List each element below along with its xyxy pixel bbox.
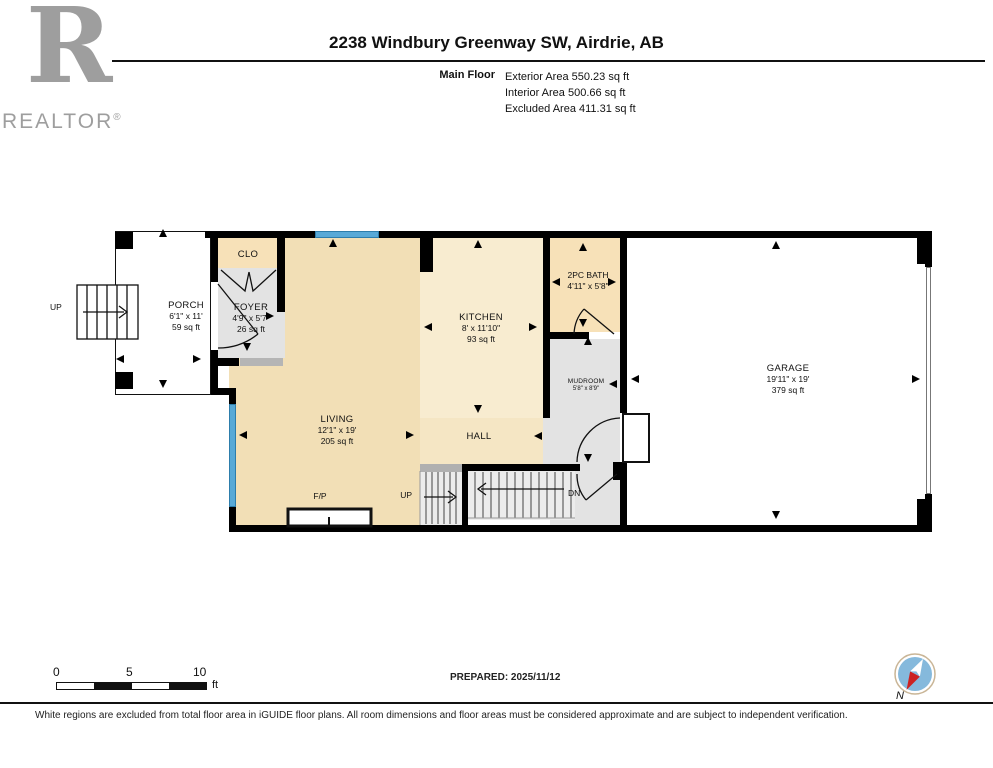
room-living-ext <box>229 358 285 525</box>
compass-north-label: N <box>896 690 904 702</box>
dimension-arrow-up <box>329 239 337 247</box>
clo-name: CLO <box>220 249 276 260</box>
stairs-down-area <box>468 471 575 520</box>
prepared-date: PREPARED: 2025/11/12 <box>450 672 560 683</box>
wall <box>917 499 932 525</box>
scale-tick-5: 5 <box>126 665 133 679</box>
dimension-arrow-right <box>608 278 616 286</box>
room-hall-passage <box>543 418 550 464</box>
label-hall: HALL <box>447 431 511 442</box>
garage-overhead-door <box>926 267 931 494</box>
foyer-area: 26 sq ft <box>212 324 290 335</box>
scale-bar-segment <box>94 683 132 689</box>
area-summary: Exterior Area 550.23 sq ft Interior Area… <box>505 69 636 117</box>
kitchen-dims: 8' x 11'10" <box>429 323 533 334</box>
wall <box>420 238 433 272</box>
floor-plan-page: R REALTOR® 2238 Windbury Greenway SW, Ai… <box>0 0 993 768</box>
garage-area: 379 sq ft <box>736 385 840 396</box>
dimension-arrow-right <box>529 323 537 331</box>
dimension-arrow-right <box>266 312 274 320</box>
dimension-arrow-up <box>474 240 482 248</box>
title-divider <box>112 60 985 62</box>
dimension-arrow-down <box>772 511 780 519</box>
dimension-arrow-down <box>584 454 592 462</box>
room-living <box>285 238 420 525</box>
foyer-name: FOYER <box>212 302 290 313</box>
dimension-arrow-left <box>631 375 639 383</box>
wall <box>917 238 932 264</box>
foyer-dims: 4'9" x 5'7" <box>212 313 290 324</box>
scale-tick-0: 0 <box>53 665 60 679</box>
label-porch-stairs-up: UP <box>50 302 62 312</box>
dimension-arrow-left <box>424 323 432 331</box>
living-area: 205 sq ft <box>285 436 389 447</box>
dimension-arrow-up <box>772 241 780 249</box>
wall <box>211 231 218 282</box>
window-living-top <box>315 231 379 238</box>
realtor-brand-text: REALTOR <box>2 110 113 133</box>
label-kitchen: KITCHEN 8' x 11'10" 93 sq ft <box>429 312 533 344</box>
label-stairs-down: DN <box>568 488 580 498</box>
garage-dims: 19'11" x 19' <box>736 374 840 385</box>
footer-divider <box>0 702 993 704</box>
kitchen-area: 93 sq ft <box>429 334 533 345</box>
registered-mark: ® <box>113 112 122 123</box>
dimension-arrow-left <box>116 355 124 363</box>
fireplace-name: F/P <box>298 491 342 502</box>
dimension-arrow-right <box>193 355 201 363</box>
wall <box>229 525 932 532</box>
stairs-up-area <box>420 471 462 525</box>
excluded-area: Excluded Area 411.31 sq ft <box>505 101 636 117</box>
wall <box>211 358 239 366</box>
label-fireplace: F/P <box>298 491 342 502</box>
stair-landing <box>420 464 462 472</box>
dimension-arrow-left <box>239 431 247 439</box>
realtor-logo-icon: R <box>26 0 112 106</box>
living-dims: 12'1" x 19' <box>285 425 389 436</box>
dimension-arrow-down <box>474 405 482 413</box>
wall <box>229 507 236 525</box>
label-foyer: FOYER 4'9" x 5'7" 26 sq ft <box>212 302 290 334</box>
exterior-area: Exterior Area 550.23 sq ft <box>505 69 636 85</box>
dimension-arrow-right <box>406 431 414 439</box>
compass-icon <box>895 654 935 694</box>
dimension-arrow-left <box>534 432 542 440</box>
dimension-arrow-left <box>552 278 560 286</box>
scale-tick-10: 10 <box>193 665 206 679</box>
label-garage: GARAGE 19'11" x 19' 379 sq ft <box>736 363 840 395</box>
window-living-left <box>229 404 236 507</box>
dimension-arrow-left <box>609 380 617 388</box>
wall <box>115 232 133 249</box>
kitchen-name: KITCHEN <box>429 312 533 323</box>
label-clo: CLO <box>220 249 276 260</box>
floor-label: Main Floor <box>375 69 495 81</box>
wall <box>211 388 236 395</box>
wall <box>229 395 236 404</box>
dimension-arrow-down <box>159 380 167 388</box>
wall <box>115 372 133 389</box>
label-stairs-up: UP <box>386 490 412 500</box>
page-title: 2238 Windbury Greenway SW, Airdrie, AB <box>0 33 993 53</box>
dimension-arrow-right <box>912 375 920 383</box>
foyer-threshold <box>240 358 283 366</box>
garage-name: GARAGE <box>736 363 840 374</box>
wall <box>613 462 627 480</box>
dimension-arrow-up <box>584 337 592 345</box>
disclaimer-text: White regions are excluded from total fl… <box>35 710 965 721</box>
scale-unit: ft <box>212 679 218 691</box>
wall <box>543 332 589 339</box>
hall-name: HALL <box>447 431 511 442</box>
wall <box>277 238 285 312</box>
wall <box>462 471 468 525</box>
dimension-arrow-up <box>159 229 167 237</box>
dimension-arrow-down <box>579 319 587 327</box>
living-name: LIVING <box>285 414 389 425</box>
scale-bar-segment <box>169 683 206 689</box>
dimension-arrow-down <box>243 343 251 351</box>
dimension-arrow-up <box>579 243 587 251</box>
interior-area: Interior Area 500.66 sq ft <box>505 85 636 101</box>
label-living: LIVING 12'1" x 19' 205 sq ft <box>285 414 389 446</box>
scale-bar <box>56 682 207 690</box>
wall <box>462 464 580 471</box>
realtor-wordmark: REALTOR® <box>2 110 123 134</box>
